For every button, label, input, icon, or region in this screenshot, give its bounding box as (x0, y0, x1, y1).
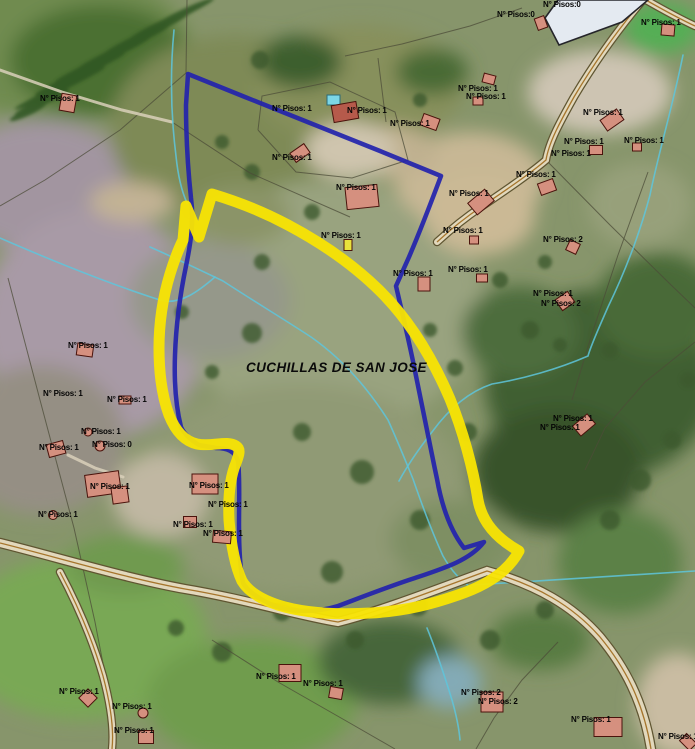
floors-label: N° Pisos: 1 (68, 341, 108, 350)
floors-label: N° Pisos: 1 (40, 94, 80, 103)
floors-label: N° Pisos: 1 (203, 529, 243, 538)
building-footprint (590, 146, 603, 155)
floors-label: N° Pisos: 1 (321, 231, 361, 240)
floors-label: N° Pisos:0 (543, 0, 581, 9)
floors-label: N° Pisos: 1 (208, 500, 248, 509)
floors-label: N° Pisos: 1 (189, 481, 229, 490)
aerial-map: N° Pisos:0N° Pisos:0N° Pisos: 1N° Pisos:… (0, 0, 695, 749)
floors-label: N° Pisos: 1 (624, 136, 664, 145)
floors-label: N° Pisos: 1 (564, 137, 604, 146)
floors-label: N° Pisos: 1 (393, 269, 433, 278)
floors-label: N° Pisos: 1 (540, 423, 580, 432)
floors-label: N° Pisos: 2 (543, 235, 583, 244)
building-footprint (344, 240, 352, 251)
floors-label: N° Pisos:0 (497, 10, 535, 19)
area-name-label: CUCHILLAS DE SAN JOSE (246, 360, 428, 375)
floors-label: N° Pisos: 1 (39, 443, 79, 452)
floors-label: N° Pisos: 1 (449, 189, 489, 198)
map-viewport[interactable]: N° Pisos:0N° Pisos:0N° Pisos: 1N° Pisos:… (0, 0, 695, 749)
floors-label: N° Pisos: 1 (551, 149, 591, 158)
floors-label: N° Pisos: 1 (173, 520, 213, 529)
pool-structure (327, 95, 340, 105)
floors-label: N° Pisos: 1 (533, 289, 573, 298)
floors-label: N° Pisos: 1 (112, 702, 152, 711)
building-footprint (470, 236, 479, 244)
floors-label: N° Pisos: 1 (571, 715, 611, 724)
floors-label: N° Pisos: 1 (466, 92, 506, 101)
floors-label: N° Pisos: 1 (658, 732, 695, 741)
floors-label: N° Pisos: 1 (443, 226, 483, 235)
floors-label: N° Pisos: 1 (516, 170, 556, 179)
floors-label: N° Pisos: 1 (583, 108, 623, 117)
floors-label: N° Pisos: 1 (114, 726, 154, 735)
floors-label: N° Pisos: 1 (390, 119, 430, 128)
floors-label: N° Pisos: 1 (448, 265, 488, 274)
floors-label: N° Pisos: 1 (38, 510, 78, 519)
floors-label: N° Pisos: 1 (272, 153, 312, 162)
floors-label: N° Pisos: 1 (90, 482, 130, 491)
floors-label: N° Pisos: 2 (461, 688, 501, 697)
floors-label: N° Pisos: 2 (478, 697, 518, 706)
floors-label: N° Pisos: 1 (256, 672, 296, 681)
floors-label: N° Pisos: 1 (59, 687, 99, 696)
floors-label: N° Pisos: 1 (641, 18, 681, 27)
floors-label: N° Pisos: 1 (107, 395, 147, 404)
floors-label: N° Pisos: 1 (272, 104, 312, 113)
floors-label: N° Pisos: 1 (347, 106, 387, 115)
building-footprint (477, 274, 488, 282)
building-footprint (418, 277, 430, 291)
floors-label: N° Pisos: 0 (92, 440, 132, 449)
floors-label: N° Pisos: 1 (43, 389, 83, 398)
floors-label: N° Pisos: 1 (553, 414, 593, 423)
floors-label: N° Pisos: 1 (303, 679, 343, 688)
floors-label: N° Pisos: 1 (81, 427, 121, 436)
building-footprint (329, 686, 344, 699)
floors-label: N° Pisos: 1 (336, 183, 376, 192)
floors-label: N° Pisos: 2 (541, 299, 581, 308)
